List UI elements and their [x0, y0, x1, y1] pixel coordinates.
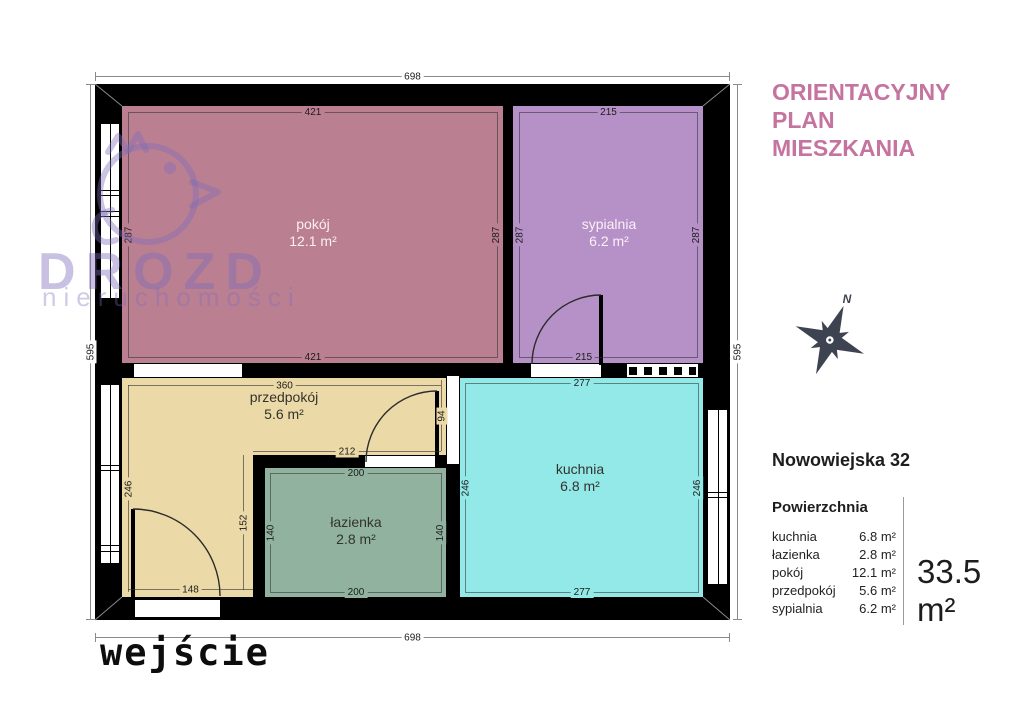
dim-outer-top: 698 — [401, 71, 424, 82]
hatch-dots-icon — [629, 367, 696, 375]
area-row-room: kuchnia — [772, 528, 817, 545]
dim-kuchnia-bottom: 277 — [571, 587, 594, 598]
dimline-przedpokoj-inner: 152 — [243, 455, 244, 590]
dim-kuchnia-left: 246 — [461, 477, 472, 500]
area-row-value: 6.8 m² — [859, 528, 896, 545]
opening-przedpokoj-kuchnia — [447, 376, 459, 464]
compass-rose-icon: N — [793, 292, 873, 376]
dims-lazienka: 200 200 140 140 — [270, 473, 442, 593]
window-kuchnia-right — [706, 408, 729, 586]
table-divider — [903, 497, 904, 625]
area-row-value: 5.6 m² — [859, 582, 896, 599]
dim-lazienka-bottom: 200 — [345, 587, 368, 598]
floor-plan-page: pokój 12.1 m² sypialnia 6.2 m² przedpokó… — [0, 0, 1024, 714]
dim-pokoj-bottom: 421 — [302, 352, 325, 363]
area-row-pokoj: pokój 12.1 m² — [772, 564, 896, 581]
dimline-outer-top: 698 — [95, 76, 730, 77]
dim-sypialnia-left: 287 — [515, 224, 526, 247]
dimline-outer-right: 595 — [737, 84, 738, 620]
window-przedpokoj-left — [99, 383, 121, 565]
room-name: przedpokój — [214, 389, 354, 406]
opening-sypialnia-door — [531, 364, 601, 377]
dim-outer-right: 595 — [732, 341, 743, 364]
area-row-value: 12.1 m² — [852, 564, 896, 581]
dim-przedpokoj-left: 246 — [123, 477, 134, 500]
area-row-lazienka: łazienka 2.8 m² — [772, 546, 896, 563]
dim-sypialnia-right: 287 — [692, 224, 703, 247]
dim-przedpokoj-top: 360 — [273, 380, 296, 391]
kuchnia-door-leaf — [435, 391, 439, 463]
title-line-1: ORIENTACYJNY — [772, 78, 982, 106]
label-przedpokoj: przedpokój 5.6 m² — [214, 389, 354, 423]
total-area: 33.5 m² — [917, 553, 1024, 629]
dims-pokoj: 421 421 287 287 — [128, 112, 498, 358]
opening-pokoj-przedpokoj — [134, 364, 242, 377]
area-row-przedpokoj: przedpokój 5.6 m² — [772, 582, 896, 599]
dimline-przedpokoj-bottom: 148 — [128, 589, 253, 590]
area-table: kuchnia 6.8 m² łazienka 2.8 m² pokój 12.… — [772, 528, 896, 618]
page-title: ORIENTACYJNY PLAN MIESZKANIA — [772, 78, 982, 162]
dim-przedpokoj-bottom: 148 — [179, 584, 202, 595]
wall-pokoj-sypialnia — [503, 106, 513, 363]
dim-kuchnia-right: 246 — [693, 477, 704, 500]
area-row-room: przedpokój — [772, 582, 836, 599]
area-row-room: sypialnia — [772, 600, 823, 617]
dimline-outer-left: 595 — [90, 84, 91, 620]
dim-lazienka-left: 140 — [266, 522, 277, 545]
area-table-heading: Powierzchnia — [772, 499, 868, 516]
dims-kuchnia: 277 277 246 246 — [465, 383, 699, 593]
pass-through-hatch — [627, 364, 698, 377]
area-row-value: 2.8 m² — [859, 546, 896, 563]
area-row-room: pokój — [772, 564, 803, 581]
dimline-przedpokoj-mid: 212 — [253, 451, 441, 452]
dim-przedpokoj-mid: 212 — [336, 446, 359, 457]
dim-pokoj-top: 421 — [302, 107, 325, 118]
dim-lazienka-top: 200 — [345, 468, 368, 479]
dim-outer-left: 595 — [85, 341, 96, 364]
area-row-value: 6.2 m² — [859, 600, 896, 617]
compass-north-label: N — [843, 292, 852, 306]
opening-lazienka-door — [365, 456, 435, 467]
dim-lazienka-right: 140 — [436, 522, 447, 545]
address-label: Nowowiejska 32 — [772, 450, 910, 471]
dims-sypialnia: 215 215 287 287 — [519, 112, 698, 358]
dim-przedpokoj-inner: 152 — [238, 511, 249, 534]
dimline-przedpokoj-door: 94 — [441, 380, 442, 451]
dim-pokoj-left: 287 — [124, 224, 135, 247]
area-row-sypialnia: sypialnia 6.2 m² — [772, 600, 896, 617]
window-pokoj-left — [99, 122, 121, 300]
dim-outer-bottom: 698 — [401, 632, 424, 643]
entrance-door-leaf — [131, 509, 135, 597]
dim-przedpokoj-door: 94 — [436, 407, 447, 424]
dim-kuchnia-top: 277 — [571, 378, 594, 389]
dim-pokoj-right: 287 — [492, 224, 503, 247]
wall-top — [95, 84, 730, 106]
area-row-kuchnia: kuchnia 6.8 m² — [772, 528, 896, 545]
dim-sypialnia-top: 215 — [597, 107, 620, 118]
dim-sypialnia-bottom: 215 — [572, 352, 595, 363]
dimline-przedpokoj-left: 246 — [128, 385, 129, 592]
entrance-door-opening — [133, 598, 222, 619]
area-row-room: łazienka — [772, 546, 820, 563]
dimline-przedpokoj-top: 360 — [128, 385, 441, 386]
title-line-3: MIESZKANIA — [772, 134, 982, 162]
wall-lazienka-left — [253, 455, 265, 597]
entrance-label: wejście — [100, 631, 270, 674]
room-area: 5.6 m² — [214, 406, 354, 423]
title-line-2: PLAN — [772, 106, 982, 134]
